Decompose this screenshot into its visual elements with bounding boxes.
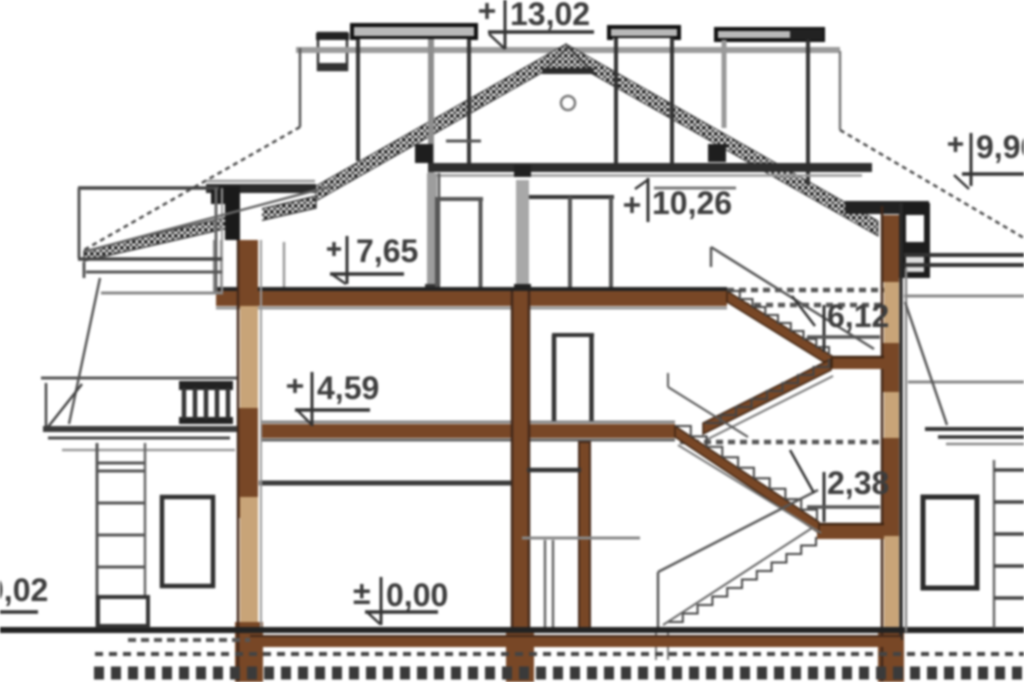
svg-text:0,00: 0,00 [386,577,448,613]
svg-text:±: ± [353,575,371,611]
svg-text:7,65: 7,65 [356,233,418,269]
svg-text:6,12: 6,12 [827,298,889,334]
svg-text:4,59: 4,59 [317,370,379,406]
svg-text:2,38: 2,38 [827,465,889,501]
svg-text:0,02: 0,02 [0,572,48,608]
svg-text:10,26: 10,26 [652,185,732,221]
svg-text:13,02: 13,02 [510,0,590,32]
svg-text:9,96: 9,96 [976,129,1024,165]
